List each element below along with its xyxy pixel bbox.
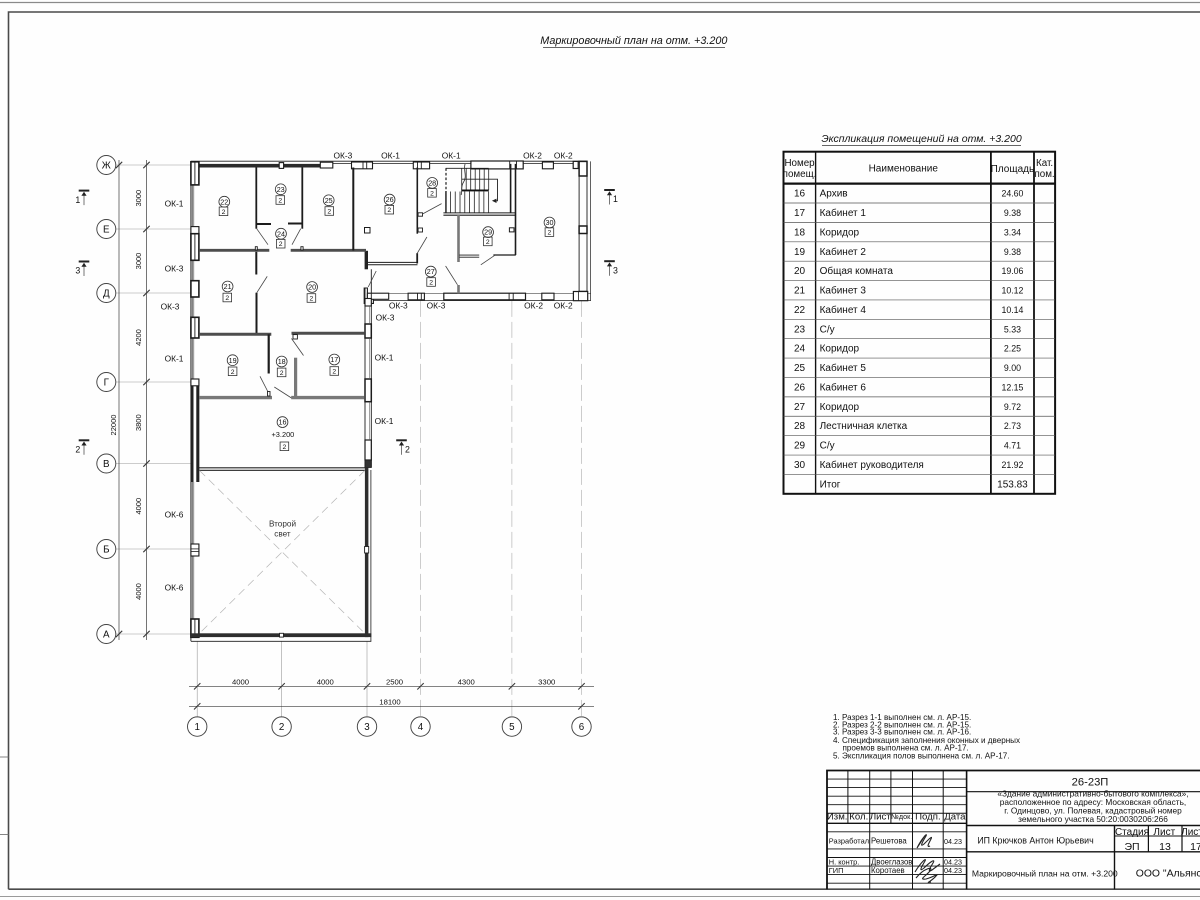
svg-text:1: 1 bbox=[75, 195, 80, 205]
svg-text:3: 3 bbox=[613, 265, 618, 275]
svg-text:3.34: 3.34 bbox=[1004, 227, 1021, 237]
svg-text:13: 13 bbox=[1159, 841, 1171, 853]
svg-text:04.23: 04.23 bbox=[944, 837, 962, 846]
svg-text:Лист: Лист bbox=[1181, 827, 1200, 838]
svg-text:Е: Е bbox=[103, 225, 110, 236]
svg-text:В: В bbox=[103, 459, 110, 470]
svg-text:2: 2 bbox=[310, 296, 314, 303]
svg-text:19: 19 bbox=[229, 356, 237, 365]
svg-text:4.71: 4.71 bbox=[1004, 441, 1021, 451]
svg-text:2.25: 2.25 bbox=[1004, 344, 1021, 354]
svg-text:1: 1 bbox=[613, 194, 618, 204]
svg-text:А: А bbox=[103, 630, 110, 641]
svg-text:04.23: 04.23 bbox=[944, 857, 962, 866]
svg-text:23: 23 bbox=[277, 185, 285, 194]
svg-text:Разработал: Разработал bbox=[829, 837, 869, 846]
svg-text:Решетова: Решетова bbox=[871, 837, 907, 846]
svg-text:28: 28 bbox=[428, 179, 436, 188]
svg-text:2: 2 bbox=[279, 722, 284, 733]
svg-text:ЭП: ЭП bbox=[1124, 841, 1139, 853]
svg-text:24.60: 24.60 bbox=[1001, 189, 1023, 199]
svg-text:22: 22 bbox=[794, 305, 806, 316]
svg-text:Кабинет 6: Кабинет 6 bbox=[820, 381, 867, 393]
svg-text:Площадь: Площадь bbox=[991, 164, 1035, 175]
svg-text:Наименование: Наименование bbox=[869, 164, 939, 175]
svg-text:30: 30 bbox=[794, 460, 806, 471]
svg-text:Архив: Архив bbox=[820, 189, 848, 200]
svg-text:Коридор: Коридор bbox=[820, 227, 860, 238]
svg-text:21.92: 21.92 bbox=[1001, 460, 1023, 470]
svg-text:Б: Б bbox=[103, 545, 109, 556]
svg-text:2: 2 bbox=[279, 241, 283, 248]
svg-text:17: 17 bbox=[794, 208, 806, 219]
svg-text:свет: свет bbox=[274, 530, 291, 539]
svg-text:Маркировочный план на отм. +3.: Маркировочный план на отм. +3.200 bbox=[540, 35, 727, 47]
svg-text:Кол.: Кол. bbox=[849, 812, 868, 823]
svg-text:9.72: 9.72 bbox=[1004, 402, 1021, 412]
svg-text:2: 2 bbox=[327, 209, 331, 216]
svg-text:3000: 3000 bbox=[134, 253, 143, 270]
svg-text:Общая комната: Общая комната bbox=[820, 265, 894, 277]
svg-text:ОК-2: ОК-2 bbox=[523, 150, 542, 160]
svg-text:18100: 18100 bbox=[379, 698, 400, 707]
svg-text:6: 6 bbox=[579, 722, 585, 733]
svg-text:земельного участка 50:20:00302: земельного участка 50:20:0030206:266 bbox=[1018, 814, 1168, 824]
svg-text:3: 3 bbox=[75, 266, 80, 276]
svg-text:С/у: С/у bbox=[820, 324, 835, 335]
svg-text:22000: 22000 bbox=[109, 415, 118, 436]
svg-text:22: 22 bbox=[220, 197, 228, 206]
svg-text:Кабинет 5: Кабинет 5 bbox=[820, 362, 867, 374]
svg-text:ОК-1: ОК-1 bbox=[375, 416, 394, 426]
svg-text:16: 16 bbox=[794, 189, 806, 200]
svg-text:17: 17 bbox=[330, 355, 338, 364]
svg-text:9.00: 9.00 bbox=[1004, 363, 1021, 373]
svg-text:ОК-3: ОК-3 bbox=[376, 313, 395, 323]
svg-text:04.23: 04.23 bbox=[944, 866, 962, 875]
svg-text:19: 19 bbox=[794, 247, 806, 258]
svg-text:ГИП: ГИП bbox=[829, 866, 844, 875]
svg-text:4300: 4300 bbox=[458, 677, 475, 686]
svg-text:Дата: Дата bbox=[944, 812, 966, 823]
svg-text:10.12: 10.12 bbox=[1001, 286, 1023, 296]
svg-text:10.14: 10.14 bbox=[1001, 305, 1023, 315]
svg-text:Лестничная клетка: Лестничная клетка bbox=[820, 421, 908, 432]
svg-text:ОК-3: ОК-3 bbox=[165, 264, 184, 274]
svg-text:23: 23 bbox=[794, 324, 806, 335]
svg-text:24: 24 bbox=[277, 229, 285, 238]
svg-text:Коридор: Коридор bbox=[820, 402, 860, 413]
svg-text:Коротаев: Коротаев bbox=[871, 866, 905, 875]
svg-text:Кабинет 1: Кабинет 1 bbox=[820, 207, 867, 219]
svg-text:ОК-3: ОК-3 bbox=[333, 150, 352, 160]
svg-text:2: 2 bbox=[332, 369, 336, 376]
svg-text:2500: 2500 bbox=[386, 677, 403, 686]
svg-text:16: 16 bbox=[279, 418, 287, 427]
svg-text:ОК-2: ОК-2 bbox=[554, 301, 573, 311]
svg-text:2: 2 bbox=[283, 444, 287, 451]
svg-text:12.15: 12.15 bbox=[1001, 382, 1023, 392]
svg-text:+3.200: +3.200 bbox=[271, 430, 294, 439]
svg-text:153.83: 153.83 bbox=[997, 479, 1028, 490]
svg-text:Итог: Итог bbox=[820, 479, 841, 490]
svg-text:2: 2 bbox=[278, 198, 282, 205]
svg-text:помещ.: помещ. bbox=[783, 169, 817, 180]
svg-text:ОК-2: ОК-2 bbox=[524, 301, 543, 311]
svg-text:18: 18 bbox=[278, 357, 286, 366]
svg-text:С/у: С/у bbox=[820, 441, 835, 452]
svg-text:Ж: Ж bbox=[102, 161, 111, 172]
svg-text:ОК-1: ОК-1 bbox=[165, 354, 184, 364]
svg-text:2: 2 bbox=[387, 207, 391, 214]
svg-text:ОК-3: ОК-3 bbox=[161, 302, 180, 312]
svg-text:ОК-1: ОК-1 bbox=[165, 199, 184, 209]
svg-text:Г: Г bbox=[104, 378, 110, 389]
svg-text:Кат.: Кат. bbox=[1036, 158, 1053, 169]
svg-text:ОК-6: ОК-6 bbox=[165, 583, 184, 593]
svg-text:21: 21 bbox=[224, 282, 232, 291]
svg-text:25: 25 bbox=[794, 363, 806, 374]
svg-text:2: 2 bbox=[405, 445, 410, 455]
svg-text:4000: 4000 bbox=[134, 498, 143, 515]
svg-text:2: 2 bbox=[225, 295, 229, 302]
svg-text:ОК-1: ОК-1 bbox=[381, 150, 400, 160]
svg-text:24: 24 bbox=[794, 344, 806, 355]
svg-text:26: 26 bbox=[794, 382, 806, 393]
svg-text:25: 25 bbox=[325, 196, 333, 205]
svg-text:21: 21 bbox=[794, 286, 806, 297]
svg-text:Маркировочный план на отм. +3.: Маркировочный план на отм. +3.200 bbox=[972, 868, 1118, 878]
svg-text:ОК-3: ОК-3 bbox=[427, 301, 446, 311]
svg-text:ИП Крючков Антон Юрьевич: ИП Крючков Антон Юрьевич bbox=[977, 836, 1093, 846]
svg-text:9.38: 9.38 bbox=[1004, 247, 1021, 257]
svg-text:26: 26 bbox=[386, 195, 394, 204]
svg-text:Второй: Второй bbox=[269, 520, 296, 529]
svg-text:27: 27 bbox=[794, 402, 806, 413]
svg-text:28: 28 bbox=[794, 421, 806, 432]
svg-text:2: 2 bbox=[231, 369, 235, 376]
svg-text:Кабинет 4: Кабинет 4 bbox=[820, 304, 867, 316]
svg-text:4000: 4000 bbox=[134, 583, 143, 600]
svg-text:пом.: пом. bbox=[1034, 169, 1054, 180]
svg-text:Лист: Лист bbox=[870, 812, 891, 823]
svg-text:ООО "Альянс": ООО "Альянс" bbox=[1136, 868, 1200, 879]
svg-text:Номер: Номер bbox=[784, 158, 815, 169]
svg-text:17: 17 bbox=[1190, 841, 1200, 853]
svg-text:18: 18 bbox=[794, 227, 806, 238]
svg-text:Экспликация помещений на отм.: Экспликация помещений на отм. +3.200 bbox=[821, 133, 1021, 145]
svg-text:2.73: 2.73 bbox=[1004, 421, 1021, 431]
svg-text:3: 3 bbox=[364, 722, 370, 733]
svg-text:4200: 4200 bbox=[134, 329, 143, 346]
svg-text:4000: 4000 bbox=[232, 677, 249, 686]
svg-text:3300: 3300 bbox=[538, 677, 555, 686]
svg-text:2: 2 bbox=[280, 370, 284, 377]
svg-text:Подп.: Подп. bbox=[915, 812, 940, 823]
svg-text:5. Экспликация полов выполнена: 5. Экспликация полов выполнена см. л. АР… bbox=[833, 751, 1010, 760]
svg-text:29: 29 bbox=[484, 228, 492, 237]
svg-text:4000: 4000 bbox=[317, 677, 334, 686]
svg-text:Изм.: Изм. bbox=[827, 812, 848, 823]
svg-text:2: 2 bbox=[430, 190, 434, 197]
svg-text:Кабинет 2: Кабинет 2 bbox=[820, 246, 867, 258]
svg-text:ОК-2: ОК-2 bbox=[554, 150, 573, 160]
svg-text:30: 30 bbox=[546, 218, 554, 227]
svg-text:26-23П: 26-23П bbox=[1072, 776, 1109, 788]
svg-text:20: 20 bbox=[308, 283, 316, 292]
svg-text:№док.: №док. bbox=[891, 812, 912, 821]
svg-text:3800: 3800 bbox=[134, 414, 143, 431]
svg-text:2: 2 bbox=[548, 230, 552, 237]
svg-text:1: 1 bbox=[194, 722, 199, 733]
svg-text:Кабинет руководителя: Кабинет руководителя bbox=[820, 459, 924, 471]
svg-text:5: 5 bbox=[509, 722, 515, 733]
svg-text:5.33: 5.33 bbox=[1004, 324, 1021, 334]
svg-text:2: 2 bbox=[429, 280, 433, 287]
svg-text:ОК-3: ОК-3 bbox=[389, 301, 408, 311]
svg-text:Д: Д bbox=[103, 289, 110, 300]
svg-text:20: 20 bbox=[794, 266, 806, 277]
svg-text:Стадия: Стадия bbox=[1115, 827, 1149, 838]
svg-text:3000: 3000 bbox=[134, 190, 143, 207]
svg-text:2: 2 bbox=[222, 209, 226, 216]
svg-text:2: 2 bbox=[75, 445, 80, 455]
svg-text:Коридор: Коридор bbox=[820, 344, 860, 355]
svg-text:Лист: Лист bbox=[1153, 827, 1175, 838]
svg-text:Кабинет 3: Кабинет 3 bbox=[820, 285, 867, 297]
svg-text:ОК-6: ОК-6 bbox=[165, 510, 184, 520]
svg-text:27: 27 bbox=[427, 267, 435, 276]
svg-text:19.06: 19.06 bbox=[1001, 266, 1023, 276]
svg-text:9.38: 9.38 bbox=[1004, 208, 1021, 218]
svg-text:4: 4 bbox=[418, 722, 424, 733]
svg-text:29: 29 bbox=[794, 441, 806, 452]
svg-text:2: 2 bbox=[486, 239, 490, 246]
svg-text:ОК-1: ОК-1 bbox=[375, 353, 394, 363]
svg-text:ОК-1: ОК-1 bbox=[442, 150, 461, 160]
